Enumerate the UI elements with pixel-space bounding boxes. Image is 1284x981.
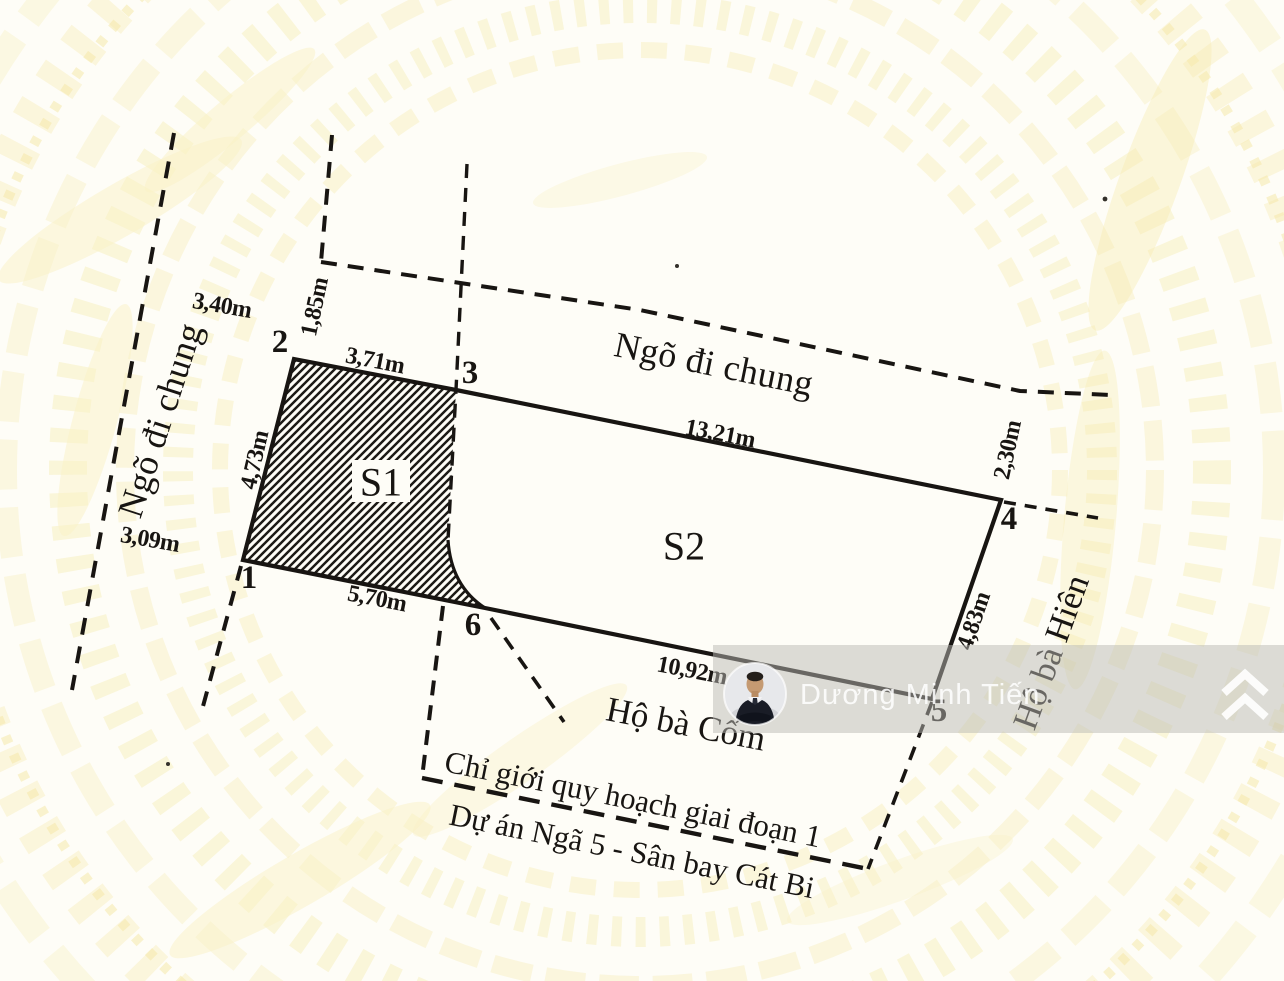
diagram-canvas: Ngõ đi chung Ngõ đi chung S1 S2 Hộ bà Cố…: [0, 0, 1284, 981]
parcel-s2-label: S2: [663, 524, 705, 569]
parcel-s1-label: S1: [360, 460, 402, 505]
avatar-hair: [747, 672, 764, 682]
point-2: 2: [272, 324, 289, 360]
point-6: 6: [465, 607, 482, 643]
watermark: Dương Minh Tiến: [713, 645, 1284, 737]
land-survey-diagram: Ngõ đi chung Ngõ đi chung S1 S2 Hộ bà Cố…: [0, 0, 1284, 981]
point-1: 1: [241, 560, 258, 596]
point-3: 3: [462, 355, 479, 391]
point-4: 4: [1001, 501, 1018, 537]
watermark-agent-name: Dương Minh Tiến: [800, 679, 1040, 711]
